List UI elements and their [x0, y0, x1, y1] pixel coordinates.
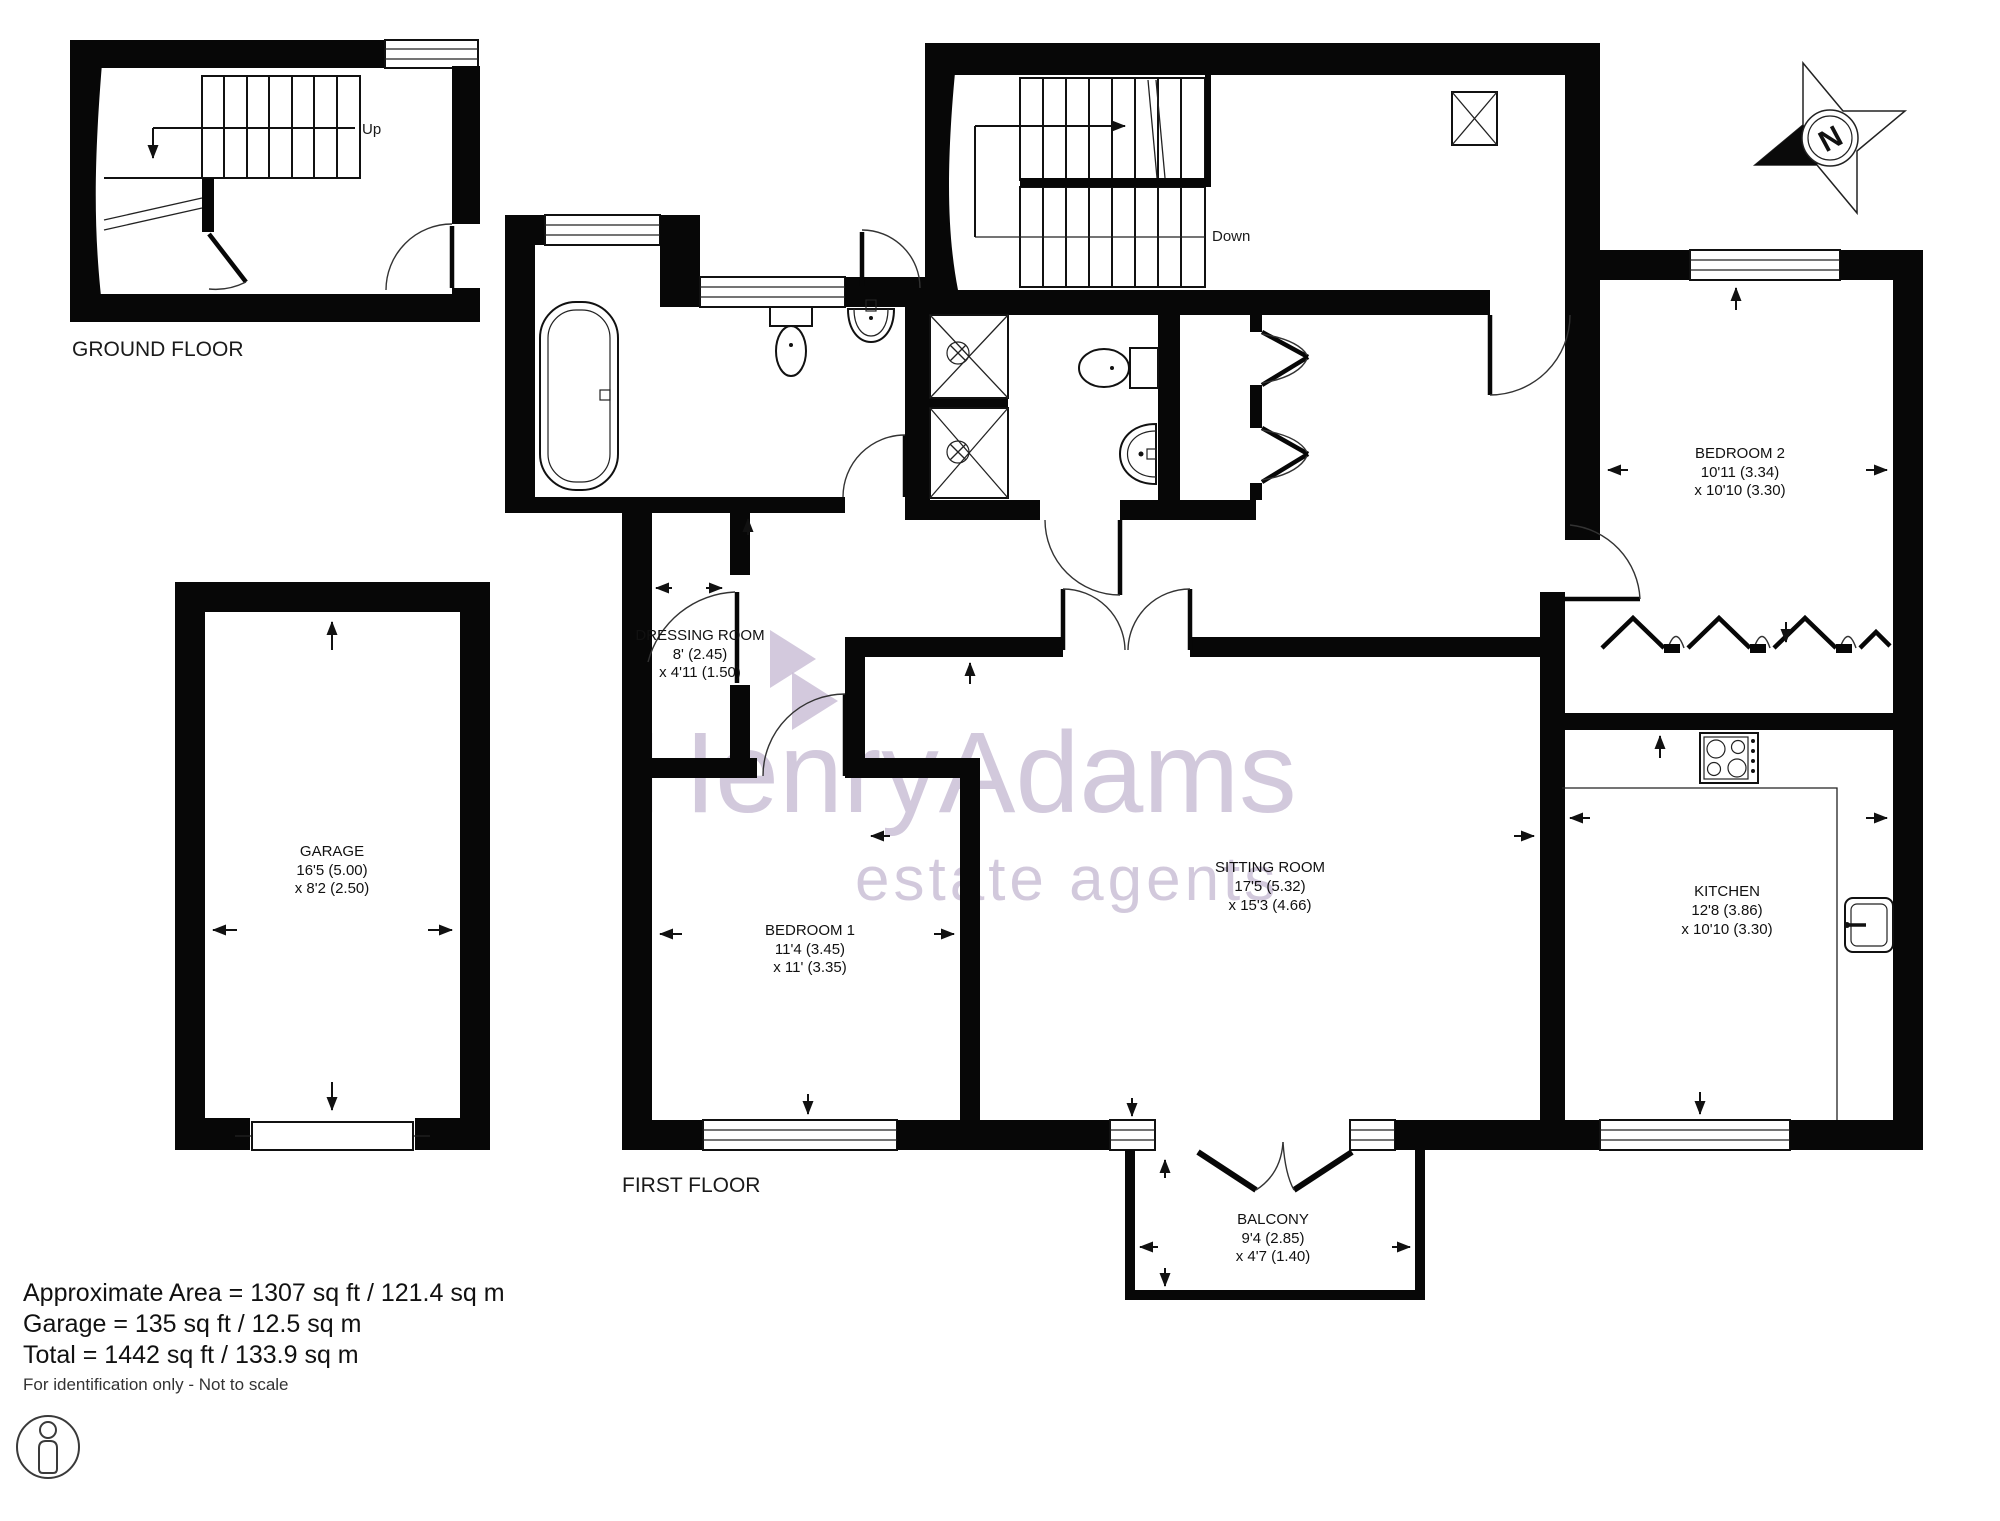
- person-icon: [17, 1416, 79, 1478]
- wall: [730, 685, 750, 758]
- kitchen-label: KITCHEN: [1694, 883, 1760, 900]
- garage-door: [235, 1122, 430, 1150]
- total-area-line: Total = 1442 sq ft / 133.9 sq m: [23, 1341, 359, 1369]
- wall: [1893, 250, 1923, 1150]
- svg-text:10'11 (3.34): 10'11 (3.34): [1701, 464, 1779, 481]
- landing-door: [1490, 315, 1570, 395]
- garage-dim1: 16'5 (5.00): [296, 862, 367, 879]
- bathtub: [540, 302, 618, 490]
- first-floor-plan: Down: [505, 43, 1923, 1300]
- area-summary: Approximate Area = 1307 sq ft / 121.4 sq…: [23, 1279, 505, 1394]
- disclaimer: For identification only - Not to scale: [23, 1375, 289, 1394]
- wall-stub: [1250, 483, 1262, 500]
- wardrobe-folding-doors: [1602, 618, 1890, 653]
- wall: [505, 497, 845, 513]
- window: [1350, 1120, 1395, 1150]
- wall: [845, 637, 865, 778]
- window: [1600, 1120, 1790, 1150]
- wall: [865, 637, 1063, 657]
- wall: [925, 290, 1490, 315]
- stairs-direction-label: Up: [362, 121, 381, 138]
- wall: [175, 1118, 250, 1150]
- stairs-direction-label: Down: [1212, 228, 1250, 245]
- wall: [70, 40, 385, 68]
- balcony-label: BALCONY: [1237, 1211, 1309, 1228]
- garage-area-line: Garage = 135 sq ft / 12.5 sq m: [23, 1310, 361, 1338]
- wc-door: [1045, 520, 1120, 595]
- wall: [1570, 290, 1600, 315]
- bathroom-door: [843, 435, 905, 497]
- window: [545, 215, 660, 245]
- french-doors: [1198, 1142, 1352, 1190]
- wall: [1600, 250, 1690, 280]
- wall-stub: [202, 178, 214, 232]
- shower-cubicle: [930, 315, 1008, 398]
- wall: [1395, 1120, 1600, 1150]
- cupboard-doors: [1262, 332, 1308, 482]
- wall: [622, 1120, 703, 1150]
- bedroom2-label: BEDROOM 2: [1695, 445, 1785, 462]
- wall: [1790, 1120, 1923, 1150]
- wall: [897, 1120, 1110, 1150]
- svg-text:x 15'3 (4.66): x 15'3 (4.66): [1229, 897, 1312, 914]
- garage-label: GARAGE: [300, 843, 364, 860]
- svg-text:17'5 (5.32): 17'5 (5.32): [1234, 878, 1305, 895]
- floorplan-drawing: HenryAdams estate agents: [0, 0, 2000, 1521]
- understairs-line: [104, 198, 202, 220]
- sink-icon: [1844, 898, 1893, 952]
- wall-stub: [1250, 385, 1262, 428]
- svg-text:11'4 (3.45): 11'4 (3.45): [775, 941, 845, 958]
- toilet: [1079, 348, 1158, 388]
- window: [1110, 1120, 1155, 1150]
- wall: [1120, 500, 1256, 520]
- north-compass: N: [1755, 63, 1905, 213]
- window: [1690, 250, 1840, 280]
- window: [700, 277, 845, 307]
- dressing-room-label: DRESSING ROOM: [635, 627, 764, 644]
- sitting-room-double-doors: [1063, 589, 1190, 650]
- banister: [1148, 80, 1157, 178]
- svg-text:x 10'10 (3.30): x 10'10 (3.30): [1694, 482, 1785, 499]
- wall: [905, 500, 1040, 520]
- wall: [460, 582, 490, 1150]
- sitting-room-label: SITTING ROOM: [1215, 859, 1325, 876]
- wall: [660, 215, 700, 307]
- floorplan-page: HenryAdams estate agents: [0, 0, 2000, 1521]
- wall: [1562, 713, 1923, 730]
- door: [209, 234, 246, 289]
- wall: [505, 215, 535, 513]
- wall: [925, 43, 1600, 75]
- basin: [1120, 424, 1156, 484]
- approximate-area-line: Approximate Area = 1307 sq ft / 121.4 sq…: [23, 1279, 505, 1307]
- wall: [930, 398, 1008, 408]
- ground-floor-title: GROUND FLOOR: [72, 338, 244, 361]
- wall: [1158, 315, 1180, 500]
- staircase-down: [975, 75, 1211, 287]
- wall: [845, 277, 930, 307]
- wall: [1540, 592, 1565, 1120]
- rooflight-icon: [1452, 92, 1497, 145]
- svg-text:x 10'10 (3.30): x 10'10 (3.30): [1681, 921, 1772, 938]
- garage-dim2: x 8'2 (2.50): [295, 880, 370, 897]
- wall: [905, 307, 930, 500]
- svg-text:8' (2.45): 8' (2.45): [673, 646, 728, 663]
- wall: [452, 66, 480, 224]
- svg-text:x 11' (3.35): x 11' (3.35): [773, 959, 846, 976]
- toilet: [770, 307, 812, 376]
- first-floor-title: FIRST FLOOR: [622, 1174, 760, 1197]
- watermark-tagline: estate agents: [855, 845, 1279, 914]
- wall: [1190, 637, 1540, 657]
- svg-text:12'8 (3.86): 12'8 (3.86): [1691, 902, 1762, 919]
- window: [385, 40, 478, 68]
- wall: [622, 513, 652, 1150]
- garage-plan: GARAGE 16'5 (5.00) x 8'2 (2.50): [175, 582, 490, 1150]
- wall: [960, 778, 980, 1120]
- wall: [70, 40, 104, 322]
- door: [386, 224, 452, 290]
- bedroom1-label: BEDROOM 1: [765, 922, 855, 939]
- understairs-line: [104, 208, 202, 230]
- staircase-up: [104, 76, 360, 178]
- window: [703, 1120, 897, 1150]
- svg-text:x 4'11 (1.50): x 4'11 (1.50): [659, 664, 741, 681]
- ground-floor-plan: Up GROUND FLOOR: [70, 40, 480, 361]
- stair-curved-wall: [925, 43, 958, 290]
- svg-text:x 4'7 (1.40): x 4'7 (1.40): [1236, 1248, 1311, 1265]
- kitchen-counter: [1562, 788, 1837, 1120]
- wall: [175, 582, 205, 1150]
- svg-text:9'4 (2.85): 9'4 (2.85): [1242, 1230, 1305, 1247]
- wall: [175, 582, 490, 612]
- wall: [845, 758, 980, 778]
- wall: [415, 1118, 490, 1150]
- wall: [70, 294, 480, 322]
- wall-stub: [1250, 315, 1262, 332]
- hob-icon: [1700, 733, 1758, 783]
- shower-cubicle: [930, 408, 1008, 498]
